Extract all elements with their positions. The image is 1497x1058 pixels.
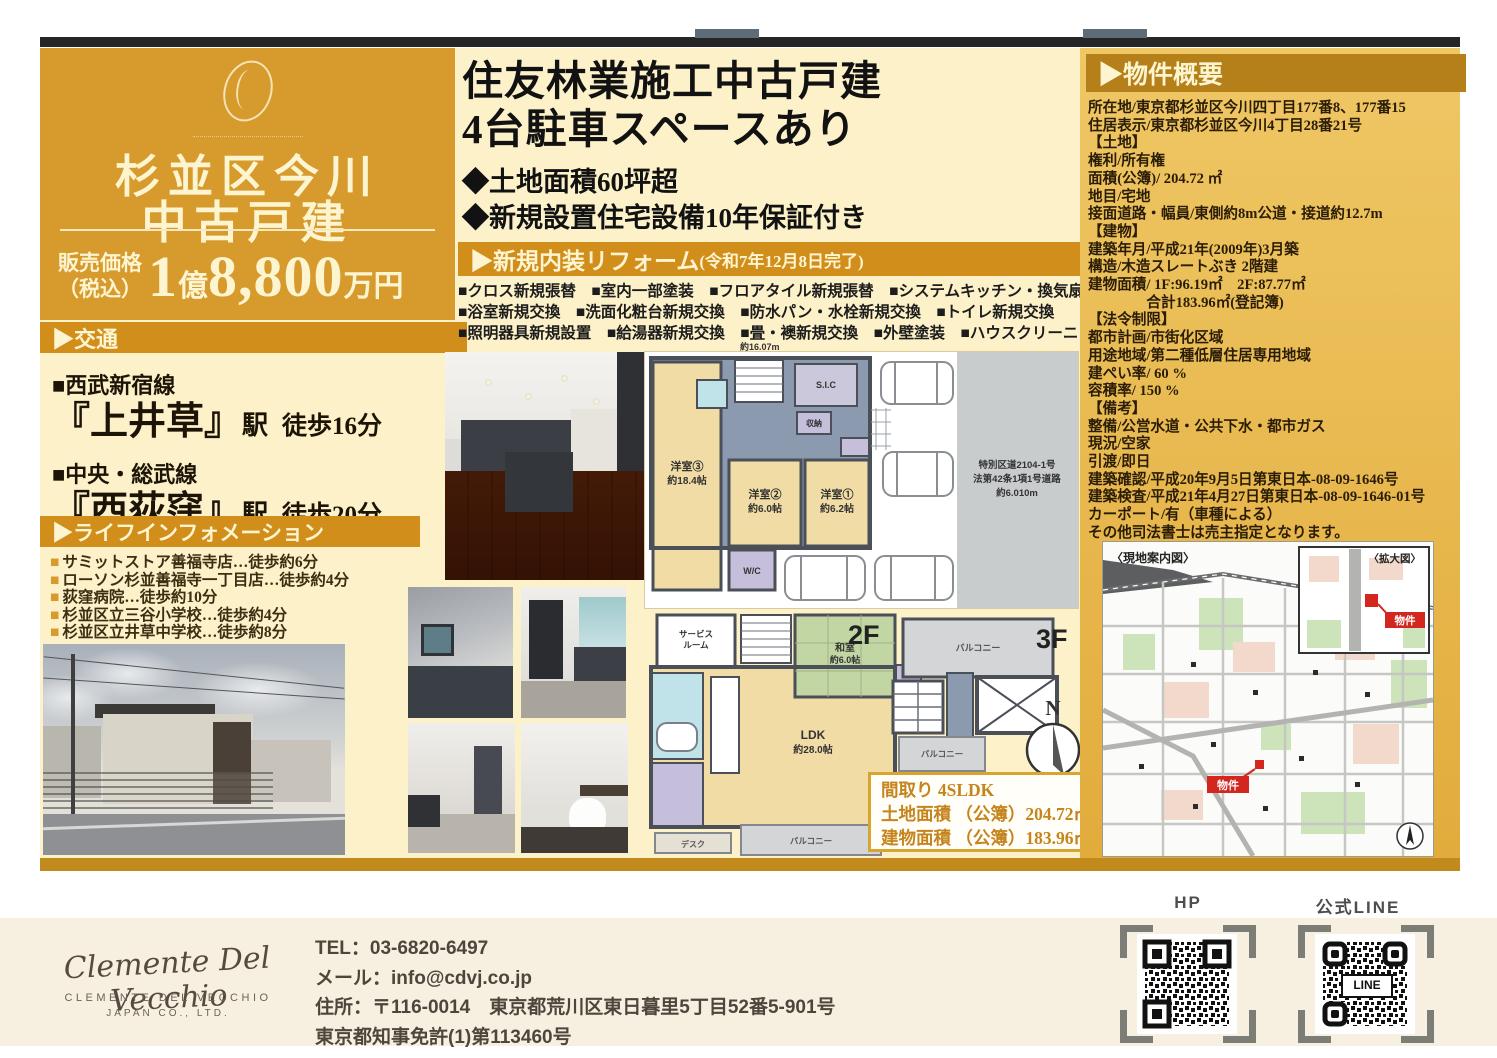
qr-hp-label: HP bbox=[1118, 893, 1258, 913]
life-item: ■サミットストア善福寺店…徒歩約6分 bbox=[50, 554, 349, 572]
balcony-2f-label: バルコニー bbox=[790, 836, 832, 846]
overview-line: 【備考】 bbox=[1088, 401, 1454, 419]
reform-line: ■浴室新規交換 ■洗面化粧台新規交換 ■防水パン・水栓新規交換 ■トイレ新規交換 bbox=[458, 302, 1078, 323]
overview-line: 建ぺい率/ 60 % bbox=[1088, 366, 1454, 384]
sic-label: S.I.C bbox=[816, 380, 837, 390]
road-designation-3: 約6.010m bbox=[996, 487, 1038, 499]
overview-line: 接面道路・幅員/東側約8m公道・接道約12.7m bbox=[1088, 206, 1454, 224]
overview-line: 都市計画/市街化区域 bbox=[1088, 330, 1454, 348]
contact-address: 住所：〒116-0014 東京都荒川区東日暮里5丁目52番5-901号 bbox=[315, 993, 836, 1023]
life-item: ■ローソン杉並善福寺一丁目店…徒歩約4分 bbox=[50, 572, 349, 590]
overview-line: 権利/所有権 bbox=[1088, 153, 1454, 171]
overview-line: 現況/空家 bbox=[1088, 436, 1454, 454]
overview-line: 地目/宅地 bbox=[1088, 189, 1454, 207]
overview-line: 住居表示/東京都杉並区今川4丁目28番21号 bbox=[1088, 118, 1454, 136]
left-gold-panel: 杉並区今川 中古戸建 販売価格 （税込） 1億8,800万円 bbox=[40, 48, 455, 320]
qr-code-hp bbox=[1120, 925, 1256, 1043]
life-item: ■荻窪病院…徒歩約10分 bbox=[50, 589, 349, 607]
floor-plan-1f-site: 特別区道2104-1号 法第42条1項1号道路 約6.010m bbox=[645, 352, 1078, 608]
life-info-list: ■サミットストア善福寺店…徒歩約6分 ■ローソン杉並善福寺一丁目店…徒歩約4分 … bbox=[50, 554, 349, 642]
top-tab-right bbox=[1083, 29, 1147, 38]
balcony-3f-bottom-label: バルコニー bbox=[921, 749, 963, 759]
contact-license: 東京都知事免許(1)第113460号 bbox=[315, 1023, 836, 1053]
service-room-label-1: サービス bbox=[679, 629, 713, 639]
overview-line: カーポート/有（車種による） bbox=[1088, 507, 1454, 525]
company-name-sub: JAPAN CO., LTD. bbox=[48, 1008, 288, 1019]
overview-line: 整備/公営水道・公共下水・都市ガス bbox=[1088, 419, 1454, 437]
room3-label: 洋室③ bbox=[671, 459, 704, 473]
selling-point-2: ◆新規設置住宅設備10年保証付き bbox=[462, 196, 867, 235]
interior-photo-toilet bbox=[521, 723, 628, 853]
top-tab-left bbox=[695, 29, 759, 38]
price-row: 販売価格 （税込） 1億8,800万円 bbox=[58, 236, 443, 316]
overview-line: 引渡/即日 bbox=[1088, 454, 1454, 472]
life-item: ■杉並区立三谷小学校…徒歩約4分 bbox=[50, 607, 349, 625]
square-bullet-icon: ■ bbox=[50, 624, 59, 641]
overview-line: 構造/木造スレートぶき 2階建 bbox=[1088, 259, 1454, 277]
room2-label: 洋室② bbox=[749, 487, 782, 501]
main-title-line1: 住友林業施工中古戸建 bbox=[462, 58, 882, 104]
overview-line: 合計183.96㎡(登記簿) bbox=[1088, 295, 1454, 313]
top-divider-bar bbox=[40, 37, 1460, 47]
layout-type: 間取り 4SLDK bbox=[881, 778, 1105, 802]
company-monogram-icon bbox=[40, 60, 455, 137]
wc-label: W/C bbox=[743, 566, 761, 576]
property-overview-list: 所在地/東京都杉並区今川四丁目177番8、177番15 住居表示/東京都杉並区今… bbox=[1088, 100, 1454, 543]
overview-line: 建物面積/ 1F:96.19㎡ 2F:87.77㎡ bbox=[1088, 277, 1454, 295]
station-1: 『上井草』駅徒歩16分 bbox=[52, 400, 382, 449]
contact-tel: TEL：03-6820-6497 bbox=[315, 934, 836, 964]
square-bullet-icon: ■ bbox=[50, 554, 59, 571]
land-area: 土地面積 （公簿）204.72㎡ bbox=[881, 802, 1105, 826]
divider bbox=[60, 229, 435, 231]
train-line-1: ■西武新宿線 bbox=[52, 368, 382, 400]
overview-line: その他司法書士は売主指定となります。 bbox=[1088, 525, 1454, 543]
overview-line: 【法令制限】 bbox=[1088, 312, 1454, 330]
price-value: 1億8,800万円 bbox=[148, 243, 404, 310]
desk-label: デスク bbox=[681, 839, 705, 849]
interior-photo-vanity bbox=[521, 587, 626, 718]
road-designation-1: 特別区道2104-1号 bbox=[978, 459, 1056, 471]
overview-line: 容積率/ 150 % bbox=[1088, 383, 1454, 401]
compass-icon: N bbox=[1020, 696, 1086, 784]
closet-label: 収納 bbox=[806, 418, 822, 428]
layout-summary-box: 間取り 4SLDK 土地面積 （公簿）204.72㎡ 建物面積 （公簿）183.… bbox=[868, 772, 1108, 852]
location-map: 物件 物件 〈拡大図〉 〈現地案内図〉 bbox=[1103, 542, 1433, 856]
room1-size: 約6.2帖 bbox=[820, 502, 854, 515]
exterior-photo bbox=[43, 644, 345, 855]
service-room-label-2: ルーム bbox=[683, 640, 709, 650]
reform-item-list: ■クロス新規張替 ■室内一部塗装 ■フロアタイル新規張替 ■システムキッチン・換… bbox=[458, 281, 1078, 344]
train-line-2: ■中央・総武線 bbox=[52, 457, 382, 489]
overview-line: 【建物】 bbox=[1088, 224, 1454, 242]
overview-section-header: ▶物件概要 bbox=[1086, 54, 1466, 92]
overview-line: 建築確認/平成20年9月5日第東日本-08-09-1646号 bbox=[1088, 472, 1454, 490]
life-info-section-header: ▶ライフインフォメーション bbox=[40, 516, 420, 547]
overview-line: 建築年月/平成21年(2009年)3月築 bbox=[1088, 242, 1454, 260]
overview-line: 【土地】 bbox=[1088, 135, 1454, 153]
map-title: 〈現地案内図〉 bbox=[1111, 550, 1195, 565]
qr-line-label: 公式LINE bbox=[1288, 893, 1428, 918]
reform-section-header: ▶新規内装リフォーム(令和7年12月8日完了) bbox=[458, 242, 1082, 276]
traffic-info: ■西武新宿線 『上井草』駅徒歩16分 ■中央・総武線 『西荻窪』駅徒歩20分 bbox=[52, 360, 382, 538]
room2-size: 約6.0帖 bbox=[748, 502, 782, 515]
life-item: ■杉並区立井草中学校…徒歩約8分 bbox=[50, 624, 349, 642]
map-inset-marker-label: 物件 bbox=[1395, 614, 1417, 627]
interior-photo-room bbox=[408, 723, 515, 853]
flyer-bottom-border bbox=[40, 858, 1460, 871]
room3-size: 約18.4帖 bbox=[667, 474, 706, 487]
flyer-canvas: 杉並区今川 中古戸建 販売価格 （税込） 1億8,800万円 ▶交通 ■西武新宿… bbox=[40, 48, 1460, 858]
washitsu-size: 約6.0帖 bbox=[830, 654, 861, 665]
map-property-marker-label: 物件 bbox=[1217, 778, 1239, 792]
overview-line: 用途地域/第二種低層住居専用地域 bbox=[1088, 348, 1454, 366]
selling-point-1: ◆土地面積60坪超 bbox=[462, 160, 678, 199]
ldk-size: 約28.0帖 bbox=[793, 743, 832, 756]
room1-label: 洋室① bbox=[821, 487, 854, 501]
compass-n-label: N bbox=[1020, 696, 1086, 721]
floor-3f-label: 3F bbox=[1036, 624, 1068, 655]
balcony-3f-top-label: バルコニー bbox=[956, 643, 1001, 653]
overview-line: 建築検査/平成21年4月27日第東日本-08-09-1646-01号 bbox=[1088, 489, 1454, 507]
building-area: 建物面積 （公簿）183.96㎡ bbox=[881, 826, 1105, 850]
interior-photo-living-kitchen bbox=[445, 352, 645, 580]
map-inset-title: 〈拡大図〉 bbox=[1369, 552, 1422, 565]
main-title-line2: 4台駐車スペースあり bbox=[462, 106, 857, 152]
contact-info: TEL：03-6820-6497 メール：info@cdvj.co.jp 住所：… bbox=[315, 934, 836, 1052]
floor-2f-label: 2F bbox=[848, 620, 880, 651]
square-bullet-icon: ■ bbox=[50, 607, 59, 624]
traffic-section-header: ▶交通 bbox=[40, 322, 467, 353]
road-designation-2: 法第42条1項1号道路 bbox=[973, 473, 1061, 485]
company-name-caps: CLEMENTE DEL VECCHIO bbox=[48, 992, 288, 1004]
line-qr-center-label: LINE bbox=[1341, 974, 1393, 998]
overview-line: 所在地/東京都杉並区今川四丁目177番8、177番15 bbox=[1088, 100, 1454, 118]
overview-line: 面積(公簿)/ 204.72 ㎡ bbox=[1088, 171, 1454, 189]
qr-code-line: LINE bbox=[1298, 925, 1434, 1043]
reform-line: ■クロス新規張替 ■室内一部塗装 ■フロアタイル新規張替 ■システムキッチン・換… bbox=[458, 281, 1078, 302]
square-bullet-icon: ■ bbox=[50, 572, 59, 589]
contact-mail: メール：info@cdvj.co.jp bbox=[315, 964, 836, 994]
interior-photo-bathroom bbox=[408, 587, 513, 718]
price-label: 販売価格 （税込） bbox=[58, 250, 142, 302]
ldk-label: LDK bbox=[801, 728, 826, 742]
square-bullet-icon: ■ bbox=[50, 589, 59, 606]
